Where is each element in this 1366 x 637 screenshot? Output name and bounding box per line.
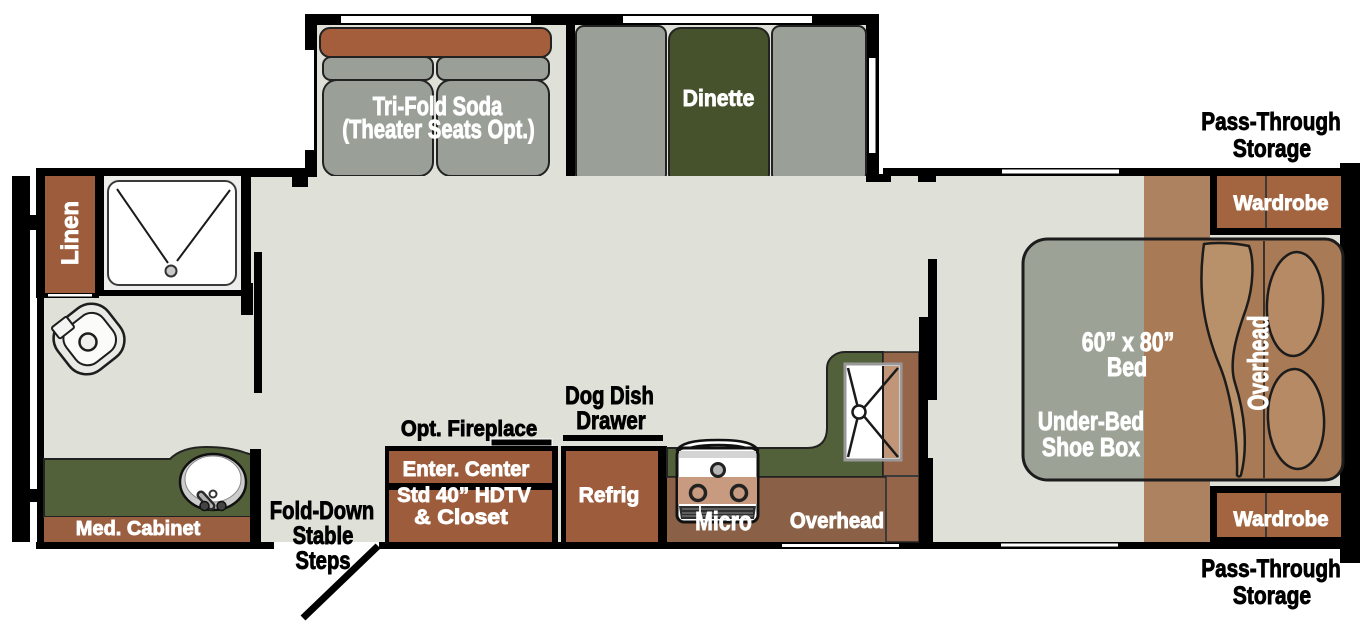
svg-text:Std 40” HDTV: Std 40” HDTV	[397, 484, 531, 507]
svg-text:Med. Cabinet: Med. Cabinet	[76, 518, 201, 540]
svg-text:Overhead: Overhead	[1243, 316, 1275, 411]
svg-text:Dinette: Dinette	[683, 85, 755, 111]
svg-text:Under-Bed: Under-Bed	[1038, 407, 1144, 436]
svg-text:Storage: Storage	[1233, 134, 1311, 162]
svg-text:Pass-Through: Pass-Through	[1201, 107, 1340, 135]
svg-text:Drawer: Drawer	[576, 406, 646, 434]
svg-text:(Theater Seats Opt.): (Theater Seats Opt.)	[342, 115, 535, 144]
svg-text:Pass-Through: Pass-Through	[1201, 554, 1340, 582]
svg-text:& Closet: & Closet	[414, 505, 508, 529]
svg-text:Linen: Linen	[57, 201, 84, 265]
svg-text:Shoe Box: Shoe Box	[1042, 433, 1141, 463]
svg-text:Enter. Center: Enter. Center	[403, 458, 530, 481]
svg-text:Bed: Bed	[1107, 353, 1147, 383]
svg-text:Overhead: Overhead	[790, 508, 884, 533]
svg-text:Opt. Fireplace: Opt. Fireplace	[401, 416, 538, 441]
svg-text:Steps: Steps	[295, 546, 350, 575]
svg-text:Micro: Micro	[695, 507, 752, 537]
svg-text:Wardrobe: Wardrobe	[1233, 508, 1328, 531]
svg-text:Storage: Storage	[1233, 581, 1311, 609]
svg-text:Wardrobe: Wardrobe	[1233, 192, 1328, 215]
svg-text:Refrig: Refrig	[579, 484, 640, 507]
